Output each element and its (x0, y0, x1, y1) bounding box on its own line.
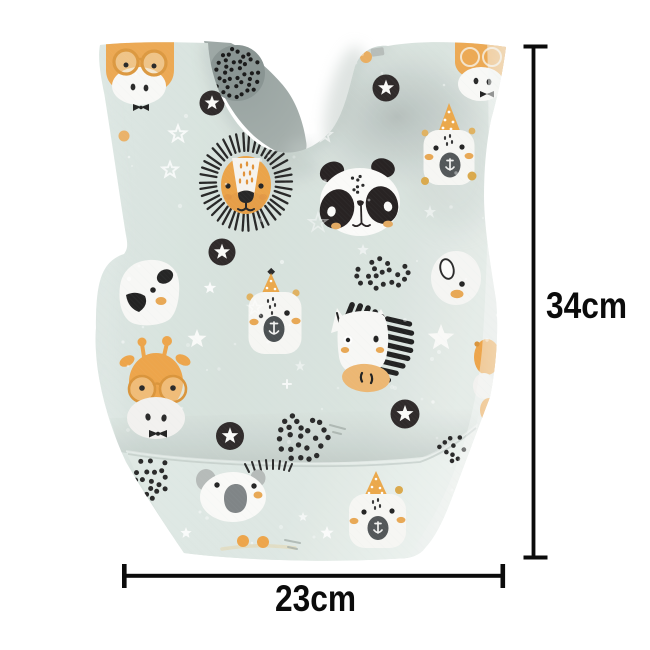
svg-text:23cm: 23cm (275, 578, 356, 619)
svg-text:34cm: 34cm (546, 285, 627, 326)
